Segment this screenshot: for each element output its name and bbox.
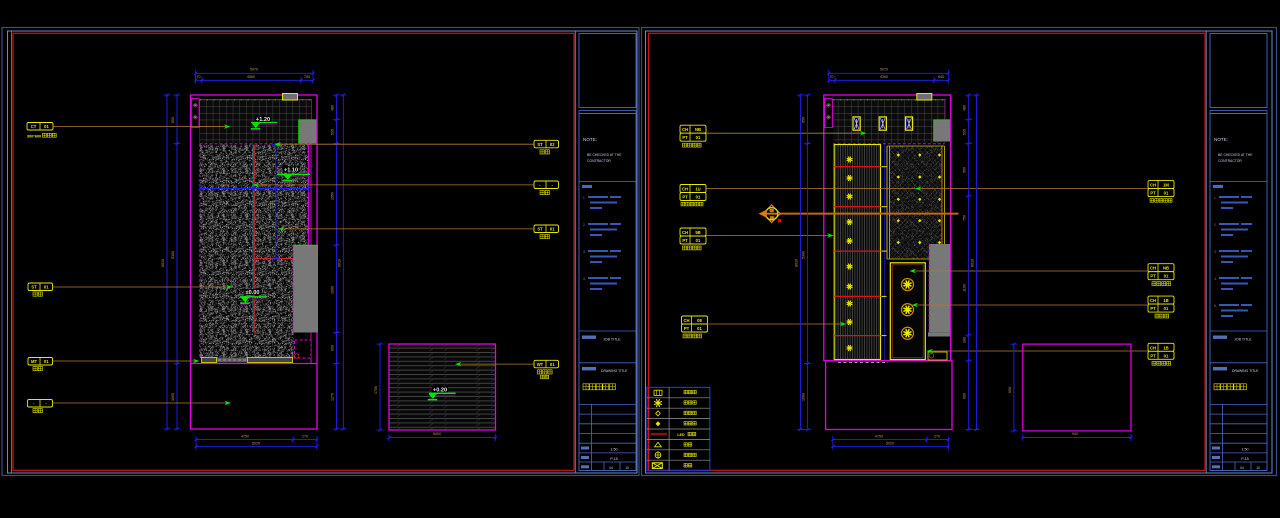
- svg-text:5020: 5020: [252, 441, 260, 445]
- svg-text:5020: 5020: [886, 441, 894, 445]
- svg-text:01: 01: [550, 227, 555, 232]
- svg-text:1950: 1950: [331, 192, 335, 200]
- svg-text:BE CHECKED AT THE: BE CHECKED AT THE: [587, 153, 622, 157]
- svg-text:1660: 1660: [802, 393, 806, 401]
- svg-text:4750: 4750: [241, 435, 249, 439]
- svg-text:CONTRACTOR: CONTRACTOR: [1218, 159, 1242, 163]
- svg-text:950: 950: [963, 167, 967, 173]
- svg-text:±0.00: ±0.00: [246, 290, 260, 296]
- svg-text:650: 650: [802, 117, 806, 123]
- svg-text:10: 10: [625, 466, 629, 470]
- svg-text:1.: 1.: [583, 196, 586, 200]
- svg-text:BE CHECKED AT THE: BE CHECKED AT THE: [1218, 153, 1253, 157]
- svg-text:01: 01: [697, 326, 702, 331]
- svg-text:PT: PT: [1150, 274, 1156, 279]
- svg-text:DRAWING TITLE: DRAWING TITLE: [601, 369, 628, 373]
- svg-text:3.: 3.: [583, 250, 586, 254]
- svg-text:5300: 5300: [802, 251, 806, 259]
- svg-text:1660: 1660: [171, 393, 175, 401]
- svg-text:5070: 5070: [250, 68, 258, 72]
- svg-text:600: 600: [331, 345, 335, 351]
- svg-text:4360: 4360: [880, 75, 888, 79]
- svg-text:530: 530: [331, 129, 335, 135]
- svg-text:04: 04: [1240, 466, 1244, 470]
- svg-text:5B: 5B: [695, 230, 700, 235]
- svg-text:4560: 4560: [247, 75, 255, 79]
- svg-text:PT: PT: [682, 195, 688, 200]
- svg-text:10: 10: [1256, 466, 1260, 470]
- svg-text:4.: 4.: [583, 277, 586, 281]
- svg-text:1690: 1690: [331, 286, 335, 294]
- svg-text:8010: 8010: [337, 259, 341, 267]
- svg-text:3.: 3.: [1214, 250, 1217, 254]
- svg-text:270: 270: [934, 435, 940, 439]
- svg-text:1:50: 1:50: [611, 448, 618, 452]
- svg-text:1150: 1150: [270, 201, 274, 209]
- svg-text:PT: PT: [1150, 191, 1156, 196]
- svg-text:01: 01: [1164, 353, 1169, 358]
- svg-text:01: 01: [44, 359, 49, 364]
- svg-text:01: 01: [1164, 274, 1169, 279]
- svg-text:LED: LED: [677, 433, 685, 437]
- svg-text:04: 04: [609, 466, 613, 470]
- svg-text:8010: 8010: [970, 259, 974, 267]
- svg-text:CH: CH: [682, 127, 688, 132]
- svg-text:01: 01: [44, 124, 49, 129]
- svg-text:1.: 1.: [1214, 196, 1217, 200]
- svg-text:NOTE:: NOTE:: [583, 137, 597, 142]
- svg-text:JOB TITLE: JOB TITLE: [603, 338, 621, 342]
- svg-text:8010: 8010: [161, 259, 165, 267]
- svg-text:PT: PT: [684, 326, 690, 331]
- svg-text:640: 640: [938, 75, 944, 79]
- svg-text:NB: NB: [1163, 266, 1169, 271]
- svg-text:1U: 1U: [695, 187, 700, 192]
- svg-text:480: 480: [963, 105, 967, 111]
- svg-text:01: 01: [696, 195, 701, 200]
- svg-text:1700: 1700: [374, 386, 378, 394]
- svg-text:CH: CH: [682, 230, 688, 235]
- svg-text:NB: NB: [695, 127, 701, 132]
- svg-text:1100: 1100: [963, 284, 967, 292]
- svg-text:CH: CH: [1150, 183, 1156, 188]
- svg-text:01: 01: [696, 238, 701, 243]
- svg-text:CONTRACTOR: CONTRACTOR: [587, 159, 611, 163]
- svg-text:01: 01: [44, 285, 49, 290]
- svg-text:NOTE:: NOTE:: [1214, 137, 1228, 142]
- svg-text:01: 01: [1164, 306, 1169, 311]
- svg-text:CH: CH: [1150, 345, 1156, 350]
- svg-text:01: 01: [1164, 191, 1169, 196]
- svg-text:1M: 1M: [1163, 183, 1169, 188]
- svg-text:ST: ST: [537, 227, 543, 232]
- svg-text:5400: 5400: [433, 432, 441, 436]
- svg-text:2060: 2060: [221, 184, 229, 188]
- svg-text:5.: 5.: [1214, 304, 1217, 308]
- svg-text:1B: 1B: [1163, 345, 1168, 350]
- svg-text:1B: 1B: [1163, 298, 1168, 303]
- svg-text:+0.20: +0.20: [433, 388, 447, 394]
- svg-text:MT: MT: [31, 359, 37, 364]
- svg-text:ST: ST: [537, 142, 543, 147]
- svg-text:1:50: 1:50: [1242, 448, 1249, 452]
- svg-text:750: 750: [963, 215, 967, 221]
- svg-text:DRAWING TITLE: DRAWING TITLE: [1232, 369, 1259, 373]
- svg-text:650: 650: [171, 117, 175, 123]
- svg-text:530: 530: [963, 129, 967, 135]
- svg-text:600: 600: [1008, 387, 1012, 393]
- svg-text:PT: PT: [682, 238, 688, 243]
- svg-text:4.: 4.: [1214, 277, 1217, 281]
- svg-text:CH: CH: [1150, 266, 1156, 271]
- svg-text:70: 70: [197, 75, 201, 79]
- svg-text:02: 02: [550, 142, 555, 147]
- svg-text:01: 01: [550, 362, 555, 367]
- svg-text:270: 270: [302, 435, 308, 439]
- svg-text:2.: 2.: [583, 223, 586, 227]
- svg-text:300*600: 300*600: [27, 134, 41, 138]
- svg-text:WT: WT: [537, 362, 544, 367]
- svg-text:PT: PT: [1150, 353, 1156, 358]
- svg-text:01: 01: [696, 135, 701, 140]
- svg-text:1140: 1140: [287, 184, 295, 188]
- svg-text:70: 70: [830, 75, 834, 79]
- svg-text:5070: 5070: [880, 68, 888, 72]
- svg-text:CT: CT: [31, 124, 37, 129]
- svg-text:4750: 4750: [875, 435, 883, 439]
- svg-text:JOB TITLE: JOB TITLE: [1234, 338, 1252, 342]
- svg-text:+1.10: +1.10: [284, 168, 298, 174]
- svg-text:760: 760: [261, 184, 267, 188]
- svg-text:P-15: P-15: [610, 457, 618, 461]
- svg-text:5300: 5300: [171, 251, 175, 259]
- svg-text:1270: 1270: [331, 393, 335, 401]
- svg-text:8010: 8010: [794, 259, 798, 267]
- svg-text:480: 480: [331, 105, 335, 111]
- svg-text:690: 690: [963, 393, 967, 399]
- svg-text:CH: CH: [682, 187, 688, 192]
- svg-text:780: 780: [304, 75, 310, 79]
- svg-text:ST: ST: [31, 285, 37, 290]
- svg-text:PT: PT: [682, 135, 688, 140]
- svg-text:P-15: P-15: [1241, 457, 1249, 461]
- svg-text:08: 08: [697, 318, 702, 323]
- svg-text:CH: CH: [1150, 298, 1156, 303]
- svg-text:900: 900: [1072, 432, 1078, 436]
- svg-text:280: 280: [963, 337, 967, 343]
- svg-text:CH: CH: [683, 318, 689, 323]
- svg-text:PT: PT: [1150, 306, 1156, 311]
- svg-text:2.: 2.: [1214, 223, 1217, 227]
